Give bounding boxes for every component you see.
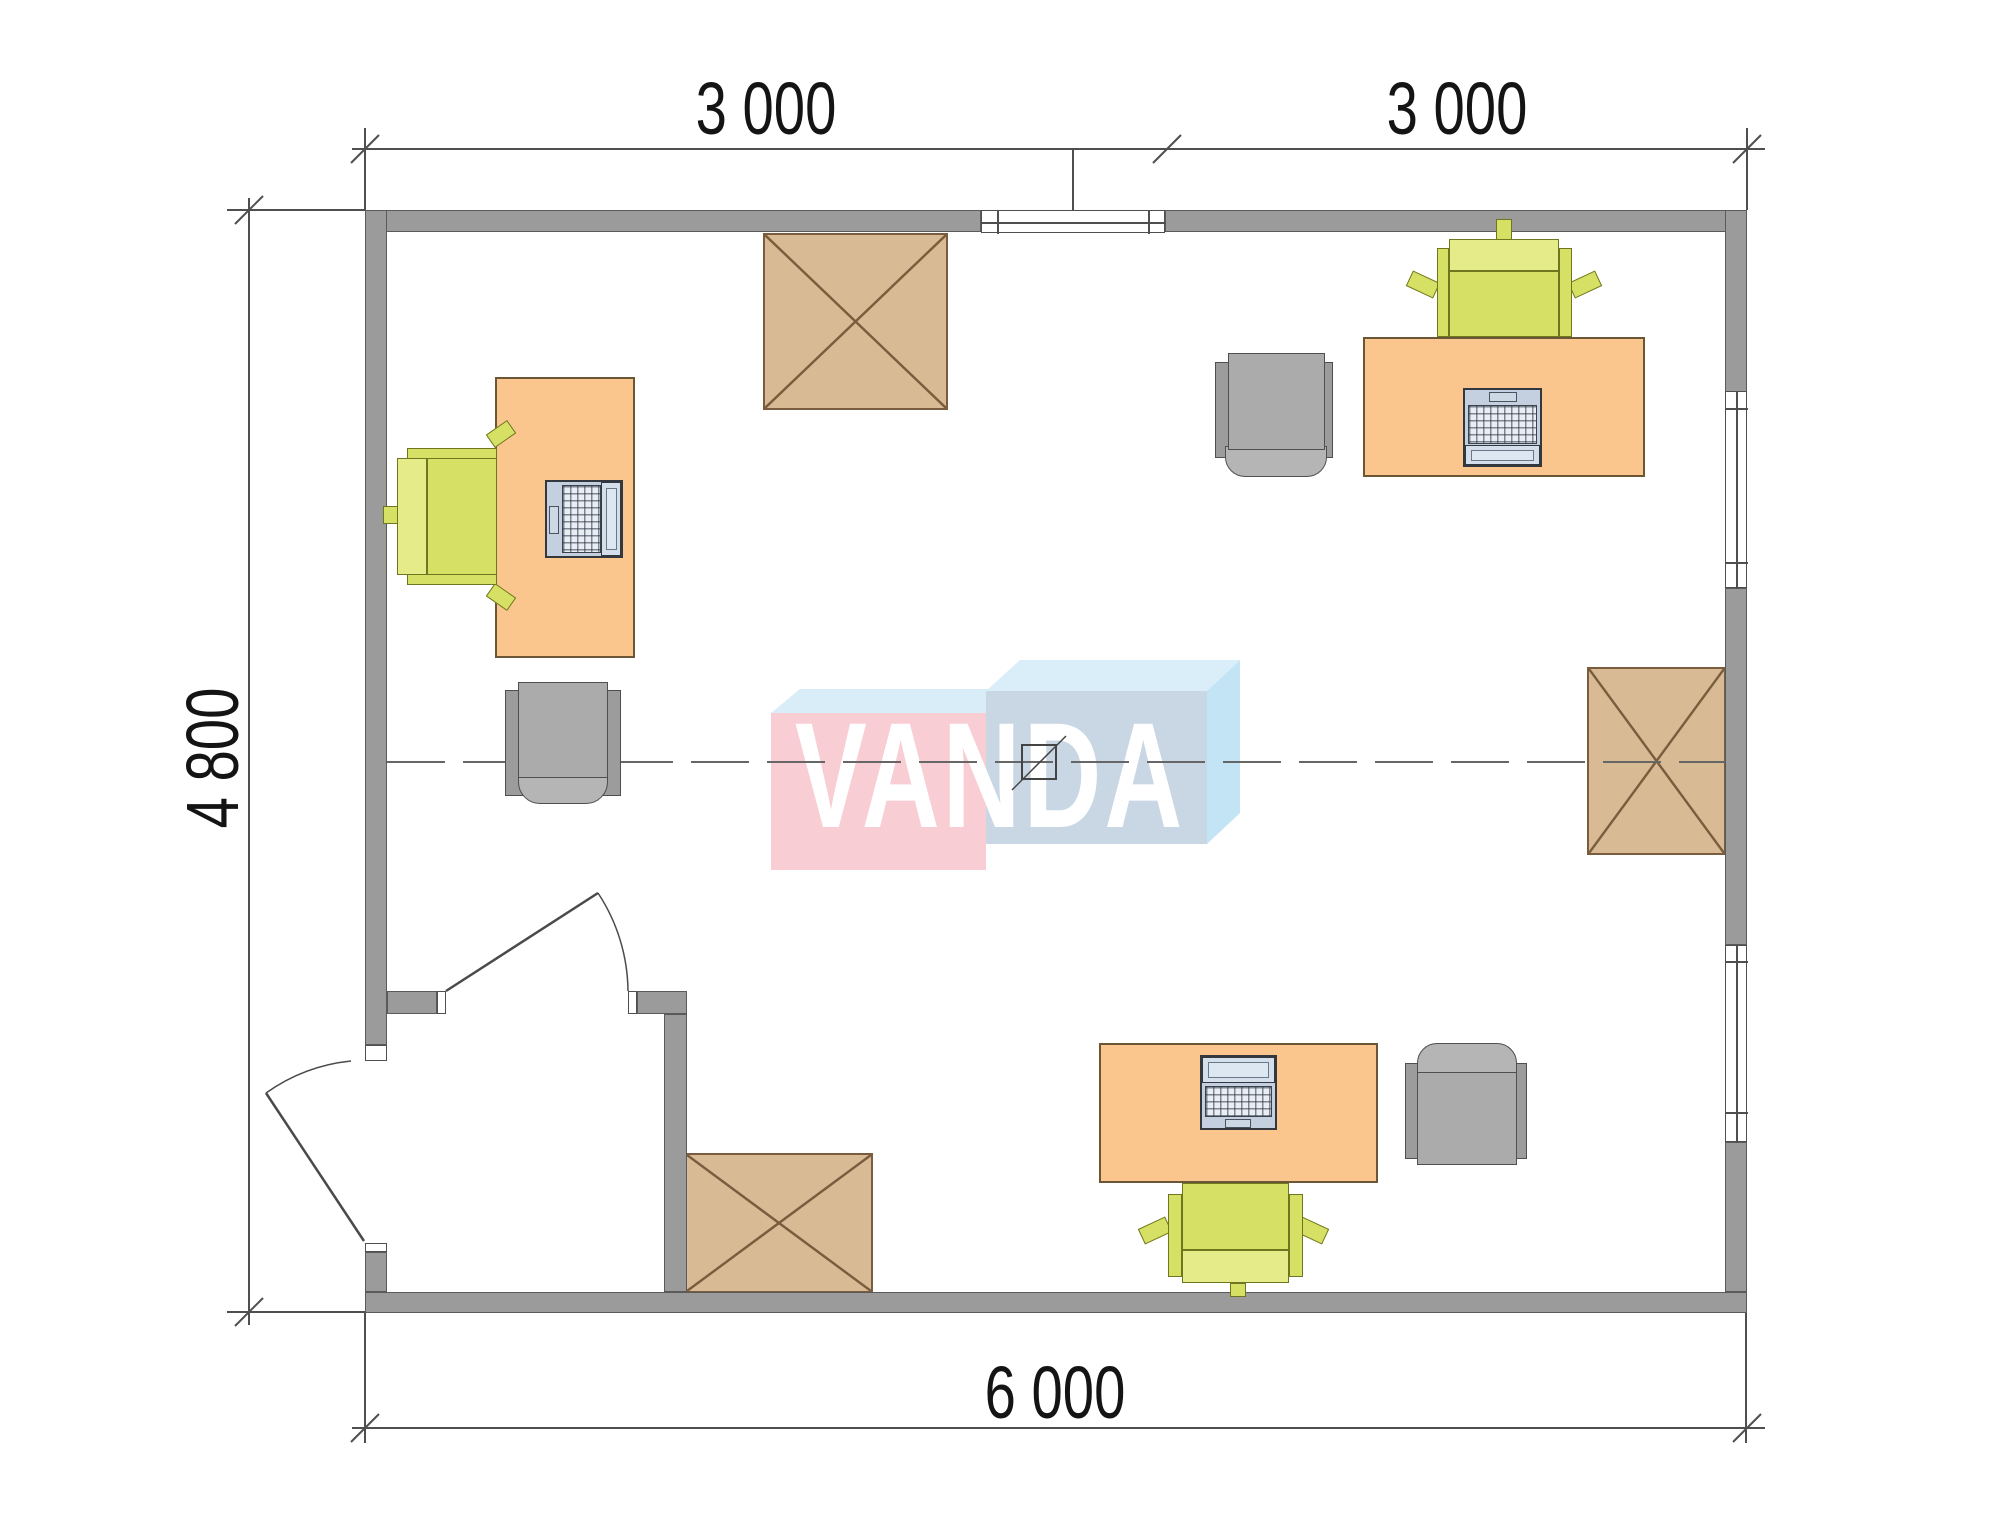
- dim-label-bottom: 6 000: [903, 1356, 1207, 1430]
- dimension-lines: [227, 128, 1765, 1443]
- dim-label-left: 4 800: [176, 606, 250, 910]
- floor-plan-canvas: VANDA: [0, 0, 2000, 1520]
- dimension-ticks: [235, 135, 1761, 1442]
- dim-label-top-right: 3 000: [1305, 72, 1609, 146]
- dimension-layer: [0, 0, 2000, 1520]
- dim-label-top-left: 3 000: [614, 72, 918, 146]
